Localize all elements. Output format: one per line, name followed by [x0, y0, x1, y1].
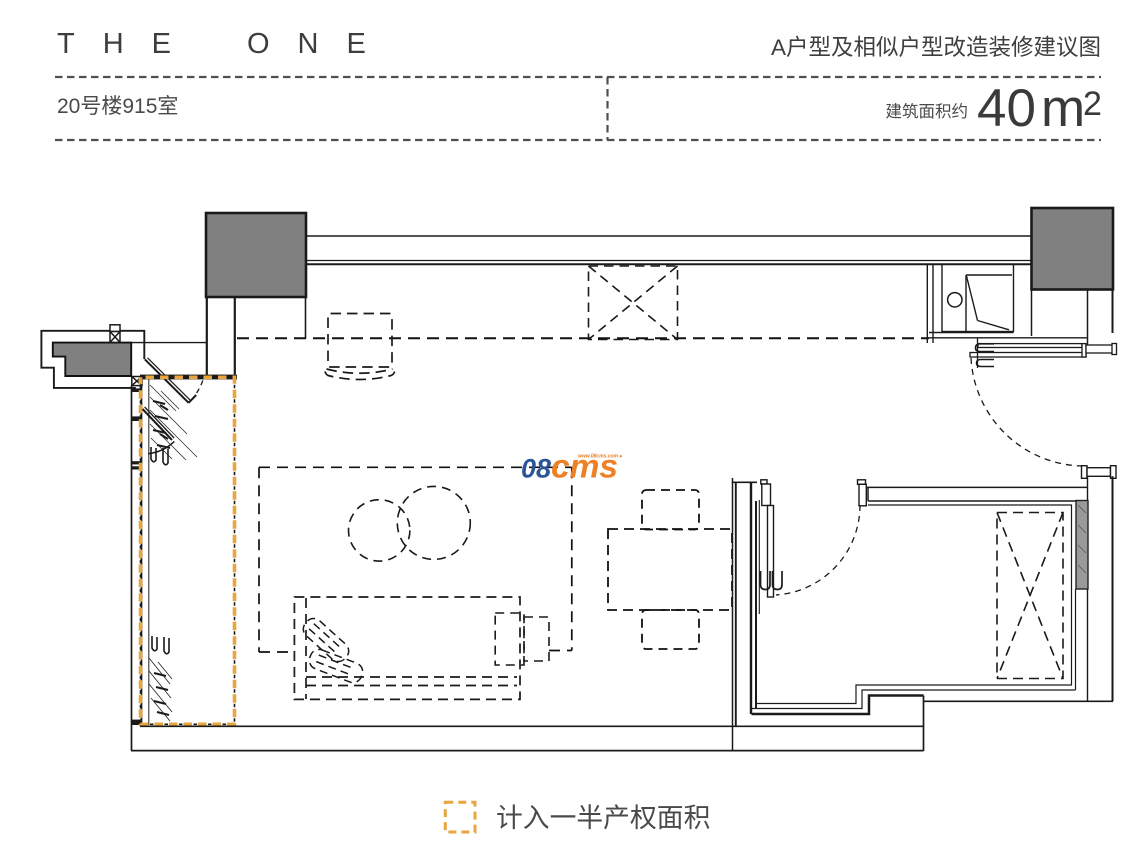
- svg-text:2: 2: [1083, 85, 1102, 123]
- svg-text:计入一半产权面积: 计入一半产权面积: [496, 803, 710, 833]
- svg-text:40: 40: [977, 79, 1036, 138]
- svg-text:cms: cms: [551, 449, 618, 486]
- svg-text:A户型及相似户型改造装修建议图: A户型及相似户型改造装修建议图: [771, 35, 1101, 60]
- svg-text:建筑面积约: 建筑面积约: [886, 102, 969, 121]
- svg-text:ONE: ONE: [247, 28, 394, 60]
- svg-text:08: 08: [521, 454, 551, 484]
- svg-text:m: m: [1041, 79, 1085, 138]
- svg-text:THE: THE: [57, 28, 199, 60]
- svg-text:20号楼915室: 20号楼915室: [57, 95, 178, 118]
